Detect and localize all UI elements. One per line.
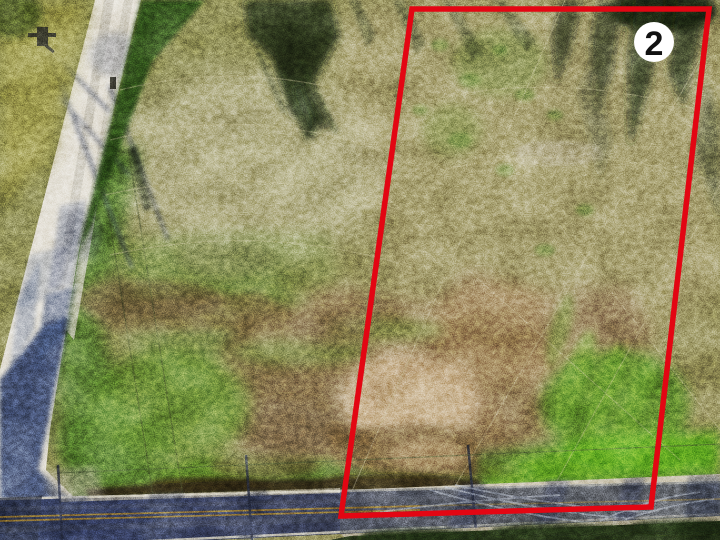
svg-text:2: 2 [645, 25, 664, 63]
